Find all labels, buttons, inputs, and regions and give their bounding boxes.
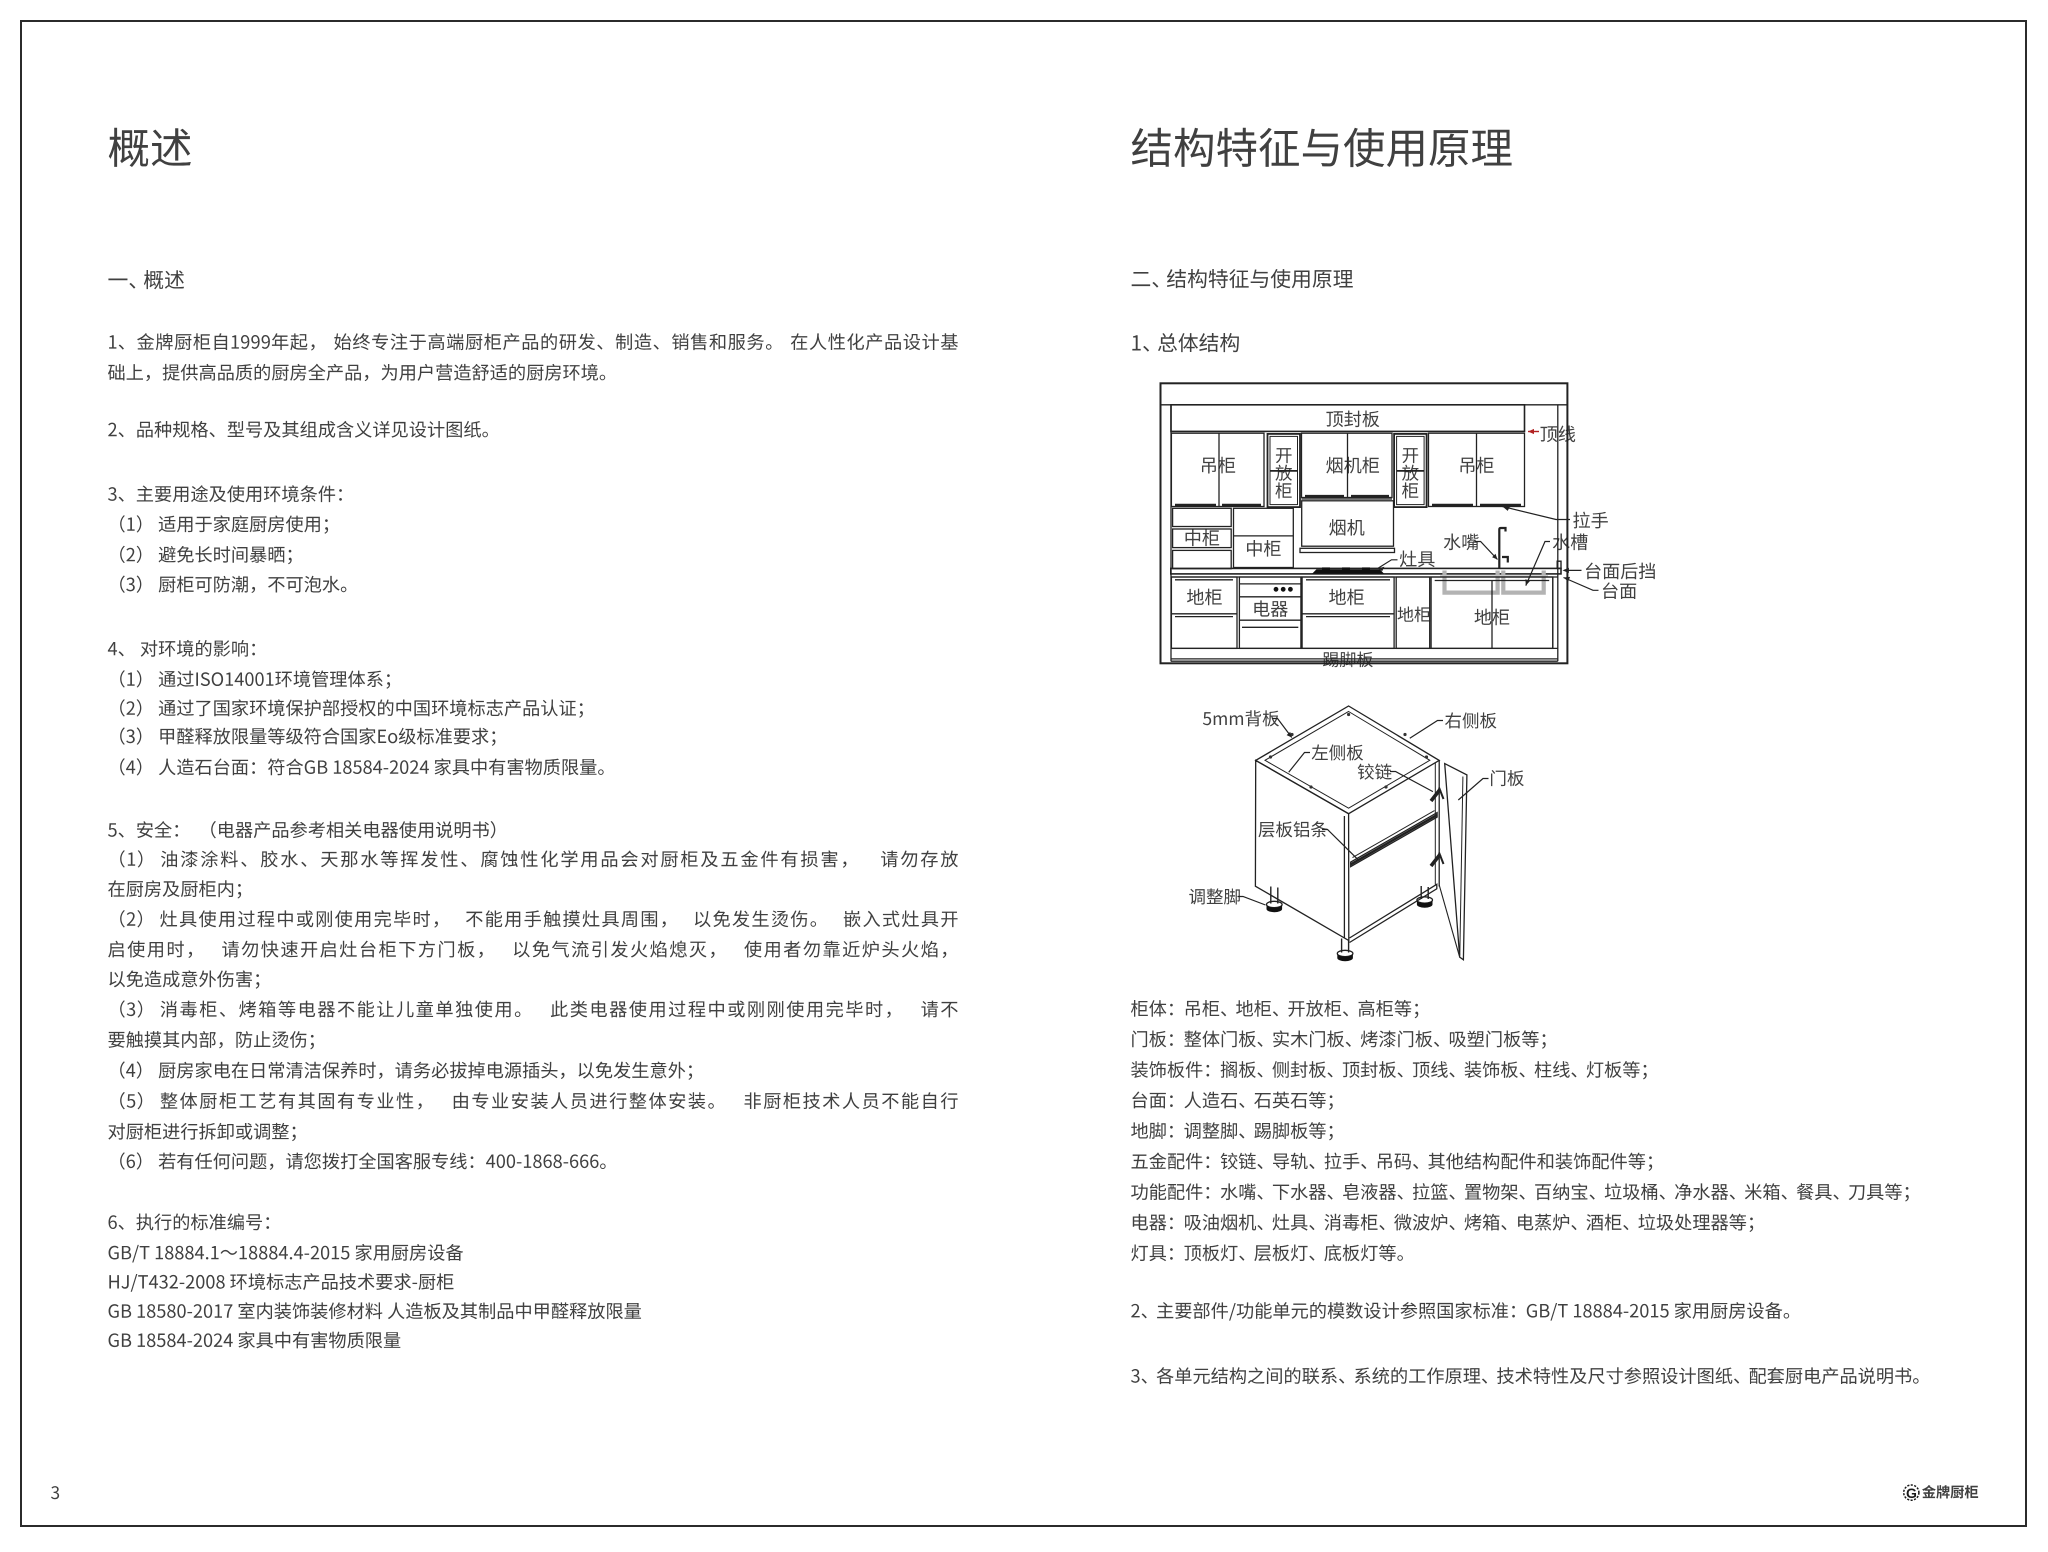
svg-text:G: G: [1906, 1485, 1917, 1501]
